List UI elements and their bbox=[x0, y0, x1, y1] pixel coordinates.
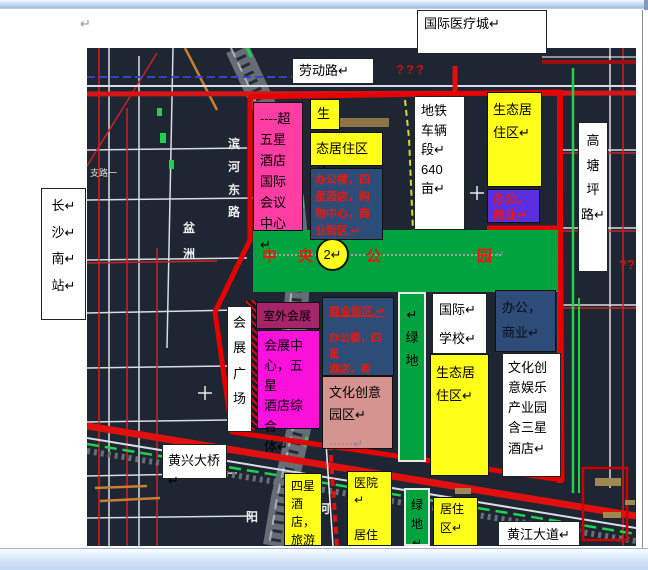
commercial-street-label: 商业街区.↵ bbox=[329, 306, 385, 318]
callout-huangjiang-avenue[interactable]: 黄江大道↵ bbox=[498, 521, 580, 546]
zone-hospital-residential[interactable]: 医院↵ 居住 区↵ bbox=[347, 471, 392, 546]
word-document-view: ↵ bbox=[0, 0, 648, 570]
zone-green-space-bottom[interactable]: 绿 地↵ bbox=[404, 488, 430, 546]
cultural-creative-dots: ⋯⋯↵ bbox=[329, 434, 386, 454]
park-char-2: 央 bbox=[298, 245, 313, 266]
island-label-penzhou: 盆 洲 bbox=[183, 215, 195, 268]
zone-eco-residential-top-right[interactable]: 生态居 住区↵ bbox=[487, 92, 542, 187]
park-char-3: 公 bbox=[366, 245, 381, 266]
callout-metro-depot-640mu[interactable]: 地铁 车辆 段↵ 640 亩↵ bbox=[414, 96, 465, 230]
top-scrollbar-end bbox=[644, 0, 648, 10]
road-label-binhe: 滨 河 东 路 bbox=[228, 133, 240, 224]
callout-changsha-south-station[interactable]: 长↵ 沙↵ 南↵ 站↵ bbox=[41, 188, 86, 320]
park-number-badge: 2↵ bbox=[316, 238, 349, 271]
zone-outdoor-exhibition[interactable]: 室外会展↵ bbox=[256, 302, 320, 329]
callout-gaotangping-road[interactable]: 高 塘 坪 路↵ bbox=[578, 122, 608, 272]
zone-central-park[interactable]: 中 央 2↵ 公 园 ↵ bbox=[253, 230, 558, 292]
park-pilcrow: ↵ bbox=[495, 248, 504, 261]
park-char-4: 园 bbox=[477, 245, 492, 266]
callout-huangxing-bridge[interactable]: 黄兴大桥↵ bbox=[162, 444, 227, 479]
zone-eco-residential-sheng[interactable]: 生↵ bbox=[310, 99, 340, 130]
river-char-yang: 阳 bbox=[246, 508, 258, 525]
zone-office-hotel-mall-north[interactable]: 办公楼，四 星酒店，购 物中心，商 业街区.↵ bbox=[310, 168, 383, 240]
callout-international-school[interactable]: 国际↵ 学校↵ bbox=[432, 293, 487, 354]
paragraph-mark: ↵ bbox=[80, 16, 91, 32]
road-label-zhilu: 支路一 bbox=[90, 166, 117, 179]
zone-cultural-creative-park[interactable]: 文化创意 园区↵ ⋯⋯↵ bbox=[322, 376, 393, 449]
zone-commercial-street-block[interactable]: 商业街区.↵ 办公楼，四星 酒店，商场.↵ bbox=[322, 297, 394, 376]
window-right-border bbox=[642, 10, 643, 548]
zone-eco-residential-strip[interactable]: 态居住区↵ bbox=[310, 132, 383, 166]
zone-office-commercial-purple[interactable]: 办公， 商业↵ bbox=[487, 189, 540, 223]
zone-eco-residential-mid-right[interactable]: 生态居 住区↵ bbox=[430, 354, 489, 476]
zone-green-space-mid[interactable]: ↵ 绿 地 bbox=[398, 292, 426, 462]
callout-cultural-entertainment-park[interactable]: 文化创 意娱乐 产业园 含三星 酒店↵ bbox=[502, 353, 561, 477]
callout-exhibition-plaza[interactable]: 会 展 广 场 bbox=[227, 306, 252, 432]
horizontal-scrollbar-track[interactable] bbox=[0, 548, 648, 570]
callout-international-medical-city[interactable]: 国际医疗城↵ bbox=[417, 10, 547, 54]
unknown-road-marks-top: ??? bbox=[396, 62, 426, 77]
callout-laodong-road[interactable]: 劳动路↵ bbox=[292, 58, 374, 84]
zone-residential-bottom[interactable]: 居住 区↵ bbox=[433, 497, 478, 546]
zone-four-star-hotel[interactable]: 四星 酒 店， 旅游 bbox=[284, 473, 322, 546]
cultural-creative-label: 文化创意 园区↵ bbox=[329, 385, 381, 422]
zone-super-five-star-hotel[interactable]: ----超 五星 酒店 国际 会议 中心↵ bbox=[253, 102, 303, 231]
zone-expo-center-hotel-complex[interactable]: 会展中 心，五星 酒店综合 体↵ bbox=[257, 330, 320, 429]
zone-office-commercial-blue[interactable]: 办公， 商业↵ bbox=[495, 290, 556, 352]
unknown-road-marks-right: ?? bbox=[619, 257, 635, 272]
top-scrollbar-track[interactable] bbox=[0, 0, 644, 9]
